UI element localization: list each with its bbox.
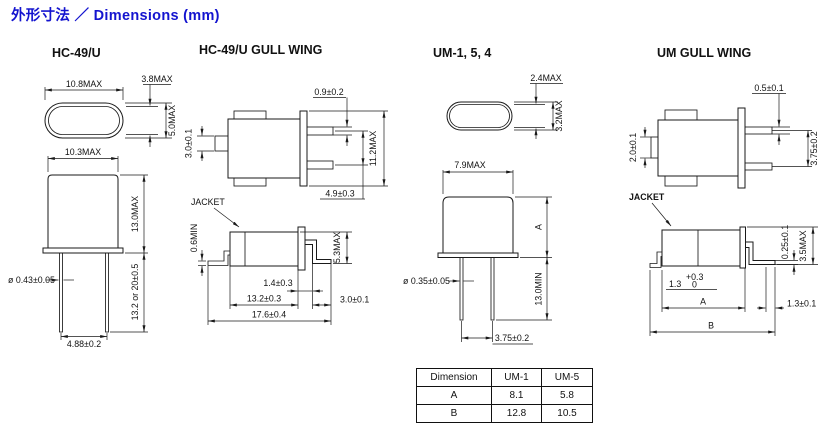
umgw-lead-1 xyxy=(745,127,772,134)
dimensions-drawing-page: 外形寸法 ／ Dimensions (mm) HC-49/U HC-49/U G… xyxy=(0,0,831,438)
dim-hc49ugw-tab-height: 3.0±0.1 xyxy=(184,129,194,158)
um-top-view: 2.4MAX 3.2MAX xyxy=(447,73,564,139)
dimension-table: Dimension UM-1 UM-5 A 8.1 5.8 B 12.8 10.… xyxy=(416,368,593,423)
umgw-lead-2 xyxy=(745,163,772,170)
col-header-dimension: Dimension xyxy=(417,369,492,387)
cell-b-um5: 10.5 xyxy=(542,405,593,423)
umgw-gull-lead xyxy=(746,242,776,265)
table-row: A 8.1 5.8 xyxy=(417,387,593,405)
hc49u-gullwing-top-view: 0.9±0.2 11.2MAX 4.9±0.3 3.0±0.1 xyxy=(184,87,389,199)
umgw-side-flange xyxy=(740,227,746,268)
dim-hc49u-lead-spacing: 4.88±0.2 xyxy=(67,339,101,349)
um-gullwing-side-view: JACKET 0.25±0.1 3.5MAX 1.3 +0.3 0 A xyxy=(629,192,818,336)
um-body xyxy=(443,197,513,253)
dim-hc49u-lead-gap: 3.8MAX xyxy=(141,74,172,84)
hc49u-base-flange xyxy=(43,248,123,253)
umgw-jacket-label: JACKET xyxy=(629,192,665,202)
hc49ugw-jacket-label: JACKET xyxy=(191,197,225,207)
um-lead-left xyxy=(460,258,463,321)
dim-um-body-width: 7.9MAX xyxy=(454,160,485,170)
cell-dim-b: B xyxy=(417,405,492,423)
um-front-view: 7.9MAX A 13.0MIN ø 0.35±0.05 3.75±0.2 xyxy=(403,160,552,344)
dim-umgw-body-dia: 3.5MAX xyxy=(798,230,808,261)
hc49ugw-side-flange xyxy=(298,227,305,270)
dim-um-oval-inner-height: 2.4MAX xyxy=(530,73,561,83)
table-row: B 12.8 10.5 xyxy=(417,405,593,423)
dim-um-lead-spacing: 3.75±0.2 xyxy=(495,333,529,343)
hc49u-case-outline xyxy=(45,103,123,138)
dim-hc49ugw-body-length: 13.2±0.3 xyxy=(247,294,281,304)
dim-um-oval-height: 3.2MAX xyxy=(554,100,564,131)
um-gullwing-top-view: 0.5±0.1 2.0±0.1 3.75±0.2 xyxy=(628,83,819,188)
hc49u-lead-right xyxy=(106,253,109,332)
umgw-flange xyxy=(738,108,745,188)
umgw-body xyxy=(658,120,738,176)
hc49u-front-view: 10.3MAX 13.0MAX 13.2 or 20±0.5 ø 0.43±0.… xyxy=(8,147,148,349)
dim-umgw-lead-thickness: 0.25±0.1 xyxy=(780,225,790,259)
dim-um-body-height: A xyxy=(534,224,544,230)
dim-hc49ugw-overall-height: 11.2MAX xyxy=(368,131,378,167)
dim-umgw-lead-width: 0.5±0.1 xyxy=(754,83,783,93)
hc49u-lead-left xyxy=(60,253,63,332)
dim-hc49u-top-width: 10.8MAX xyxy=(66,79,102,89)
dim-hc49ugw-body-dia: 5.3MAX xyxy=(332,232,342,263)
dim-hc49u-body-height: 13.0MAX xyxy=(130,196,140,232)
dim-umgw-body-length: A xyxy=(700,297,706,307)
col-header-um5: UM-5 xyxy=(542,369,593,387)
hc49ugw-left-foot xyxy=(208,251,230,266)
hc49u-gullwing-side-view: JACKET 0.6MIN 5.3MAX 1.4±0.3 13.2±0. xyxy=(189,197,369,325)
cell-a-um1: 8.1 xyxy=(492,387,542,405)
dim-hc49ugw-flange-width: 1.4±0.3 xyxy=(263,278,292,288)
um-lead-right xyxy=(491,258,494,321)
hc49u-body xyxy=(48,175,118,248)
cell-b-um1: 12.8 xyxy=(492,405,542,423)
dim-hc49u-lead-length: 13.2 or 20±0.5 xyxy=(130,264,140,321)
hc49ugw-lead-2 xyxy=(307,161,333,169)
hc49ugw-gull-lead xyxy=(305,240,331,264)
hc49ugw-lead-1 xyxy=(307,127,333,135)
dim-hc49ugw-jacket-margin: 0.6MIN xyxy=(189,224,199,252)
hc49ugw-side-tab xyxy=(215,136,228,151)
dimension-table-header-row: Dimension UM-1 UM-5 xyxy=(417,369,593,387)
col-header-um1: UM-1 xyxy=(492,369,542,387)
umgw-side-tab xyxy=(651,137,658,158)
hc49u-top-view: 10.8MAX 3.8MAX 5.0MAX xyxy=(45,74,177,147)
dim-hc49u-body-width: 10.3MAX xyxy=(65,147,101,157)
dim-hc49ugw-lead-foot: 3.0±0.1 xyxy=(340,295,369,305)
dim-umgw-overall-length: B xyxy=(708,321,714,331)
um-base-flange xyxy=(438,253,518,258)
dim-umgw-flange-tol-minus: 0 xyxy=(692,280,697,290)
cell-dim-a: A xyxy=(417,387,492,405)
dim-umgw-flange-value: 1.3 xyxy=(669,279,681,289)
dim-hc49ugw-overall-length: 17.6±0.4 xyxy=(252,310,286,320)
dim-hc49ugw-lead-pitch: 4.9±0.3 xyxy=(325,189,354,199)
hc49ugw-flange xyxy=(300,111,307,186)
dim-umgw-foot-length: 1.3±0.1 xyxy=(787,299,816,309)
hc49ugw-body xyxy=(228,119,300,178)
dim-umgw-lead-pitch: 3.75±0.2 xyxy=(809,131,819,165)
um-case-outline xyxy=(447,102,512,130)
dim-um-lead-dia: ø 0.35±0.05 xyxy=(403,276,450,286)
umgw-side-body xyxy=(662,230,740,266)
umgw-left-foot xyxy=(650,252,662,268)
cell-a-um5: 5.8 xyxy=(542,387,593,405)
dim-um-lead-length: 13.0MIN xyxy=(534,272,544,305)
hc49ugw-side-body xyxy=(230,232,298,266)
dim-hc49u-oval-height: 5.0MAX xyxy=(167,105,177,136)
dim-hc49ugw-lead-width: 0.9±0.2 xyxy=(314,87,343,97)
dim-umgw-tab-height: 2.0±0.1 xyxy=(628,133,638,162)
